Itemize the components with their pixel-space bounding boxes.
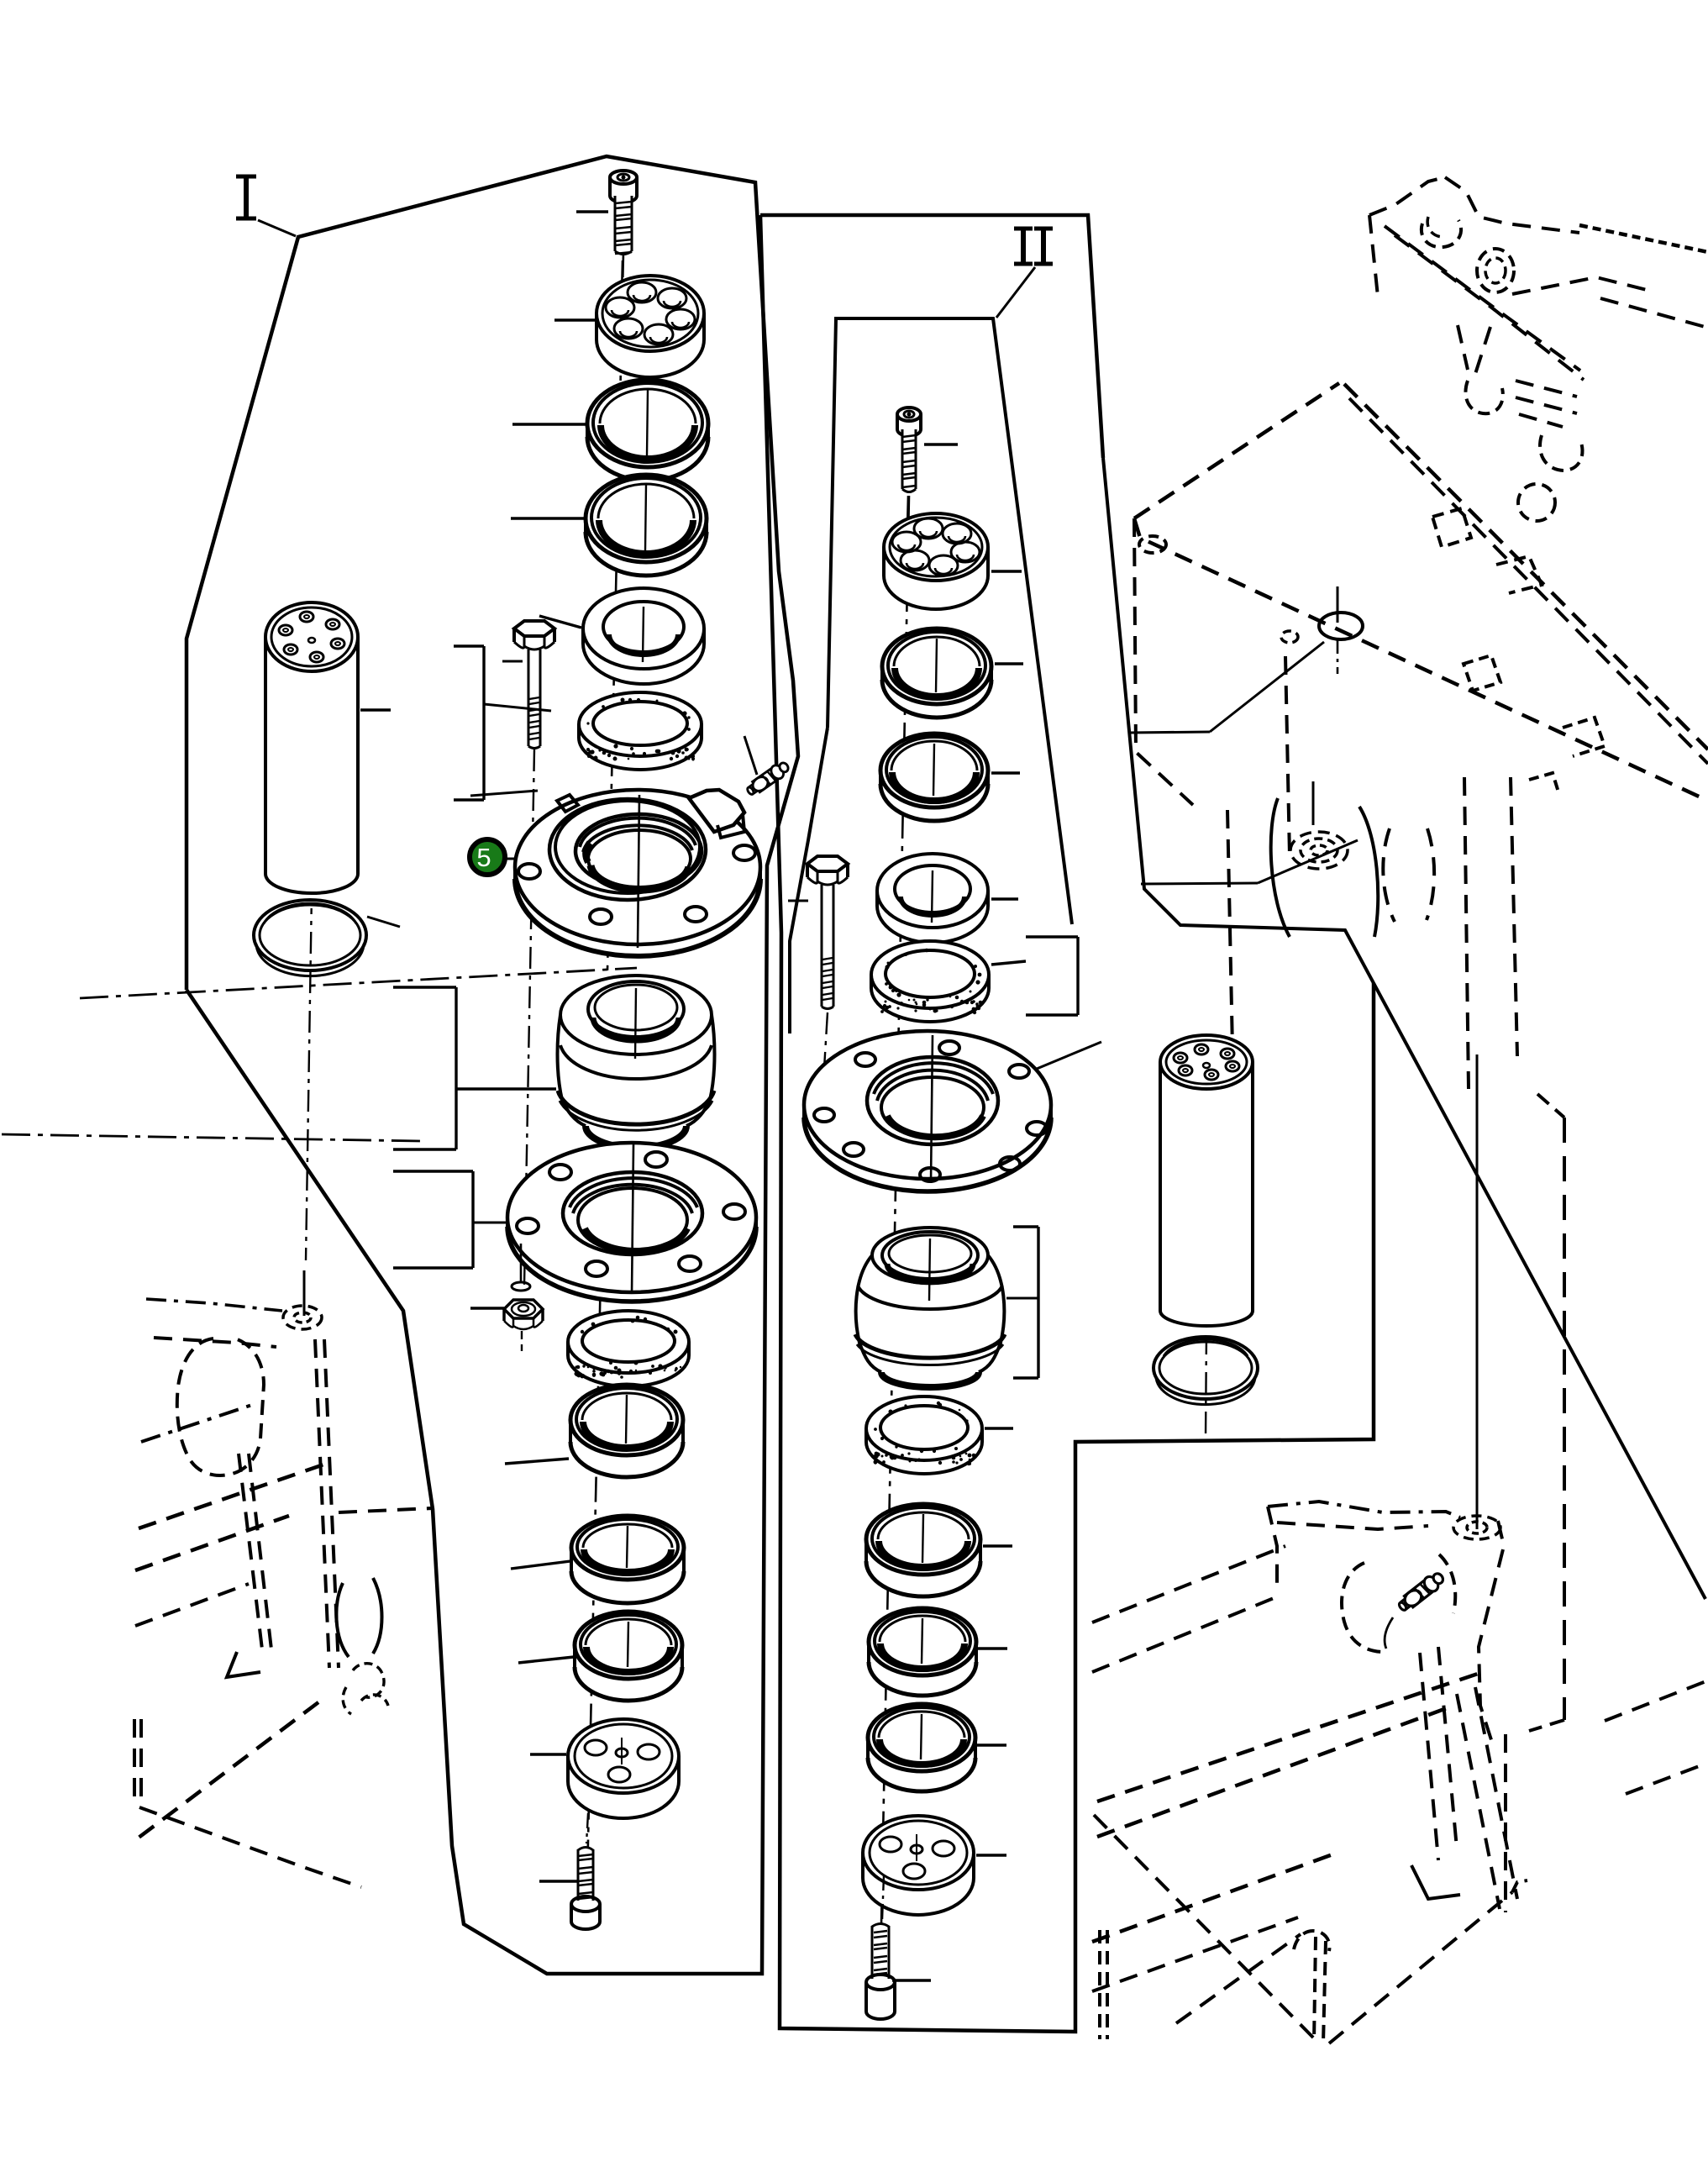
svg-text:5: 5 [476, 843, 491, 872]
